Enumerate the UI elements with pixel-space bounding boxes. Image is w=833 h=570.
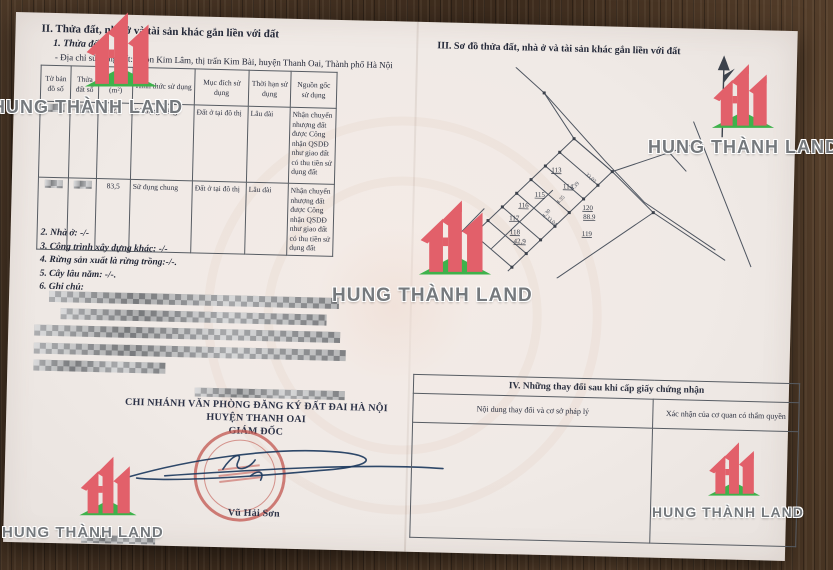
redacted-block — [33, 360, 165, 374]
col-authority-confirm: Xác nhận của cơ quan có thẩm quyền — [653, 399, 800, 432]
redacted-block — [73, 180, 91, 188]
cell-term: Lâu dài — [246, 106, 290, 183]
section2-items: 2. Nhà ở: -/- 3. Công trình xây dựng khá… — [39, 227, 178, 298]
signature-stroke — [122, 433, 453, 501]
cell-area: 42,9 — [96, 103, 132, 180]
redacted-block — [81, 535, 155, 545]
cell-term: Lâu dài — [245, 182, 289, 255]
changes-table: IV. Những thay đổi sau khi cấp giấy chứn… — [409, 374, 800, 547]
map-parcel-label: 113 — [551, 166, 562, 174]
map-parcel-label: 119 — [582, 230, 593, 238]
parcel-row-1: 42,9 Sử dụng riêng Đất ở tại đô thị Lâu … — [38, 101, 336, 184]
col-area: Diện tích (m²) — [98, 67, 133, 104]
cell-origin: Nhận chuyển nhượng đất được Công nhận QS… — [287, 183, 335, 256]
col-purpose: Mục đích sử dụng — [194, 69, 249, 106]
col-term: Thời hạn sử dụng — [248, 70, 291, 107]
map-parcel-label: 117 — [509, 214, 520, 222]
map-vertices — [471, 90, 695, 273]
map-parcel-label: 120 — [582, 204, 593, 212]
changes-empty-row — [410, 422, 799, 546]
redacted-block — [46, 104, 64, 112]
map-parcel-label: 118 — [510, 228, 521, 236]
cell-purpose: Đất ở tại đô thị — [191, 181, 247, 254]
col-origin: Nguồn gốc sử dụng — [290, 71, 337, 108]
map-area-label: 88.9 — [583, 213, 596, 221]
section3-title: III. Sơ đồ thửa đất, nhà ở và tài sản kh… — [437, 40, 680, 57]
map-area-label: 42,9 — [513, 237, 526, 245]
cadastral-map: 113 114 115 116 117 118 42,9 120 88.9 11… — [453, 66, 768, 284]
map-parcel-label: 116 — [518, 201, 529, 209]
section2-subtitle: 1. Thửa đất: — [53, 38, 105, 50]
map-parcel-label: 115 — [535, 191, 546, 199]
map-edge-length: 4.35 — [556, 194, 567, 205]
col-parcel-no: Thửa đất số — [70, 66, 99, 103]
redacted-block — [44, 180, 62, 188]
cell-use-form: Sử dụng riêng — [130, 103, 194, 180]
cell-origin: Nhận chuyển nhượng đất được Công nhận QS… — [288, 107, 336, 184]
redacted-block — [75, 104, 93, 112]
land-certificate-page: II. Thửa đất, nhà ở và tài sản khác gắn … — [3, 12, 798, 561]
photo-scene: II. Thửa đất, nhà ở và tài sản khác gắn … — [0, 0, 833, 570]
col-use-form: Hình thức sử dụng — [132, 67, 195, 105]
col-map-sheet: Tờ bản đồ số — [40, 65, 71, 102]
cell-purpose: Đất ở tại đô thị — [192, 105, 248, 182]
